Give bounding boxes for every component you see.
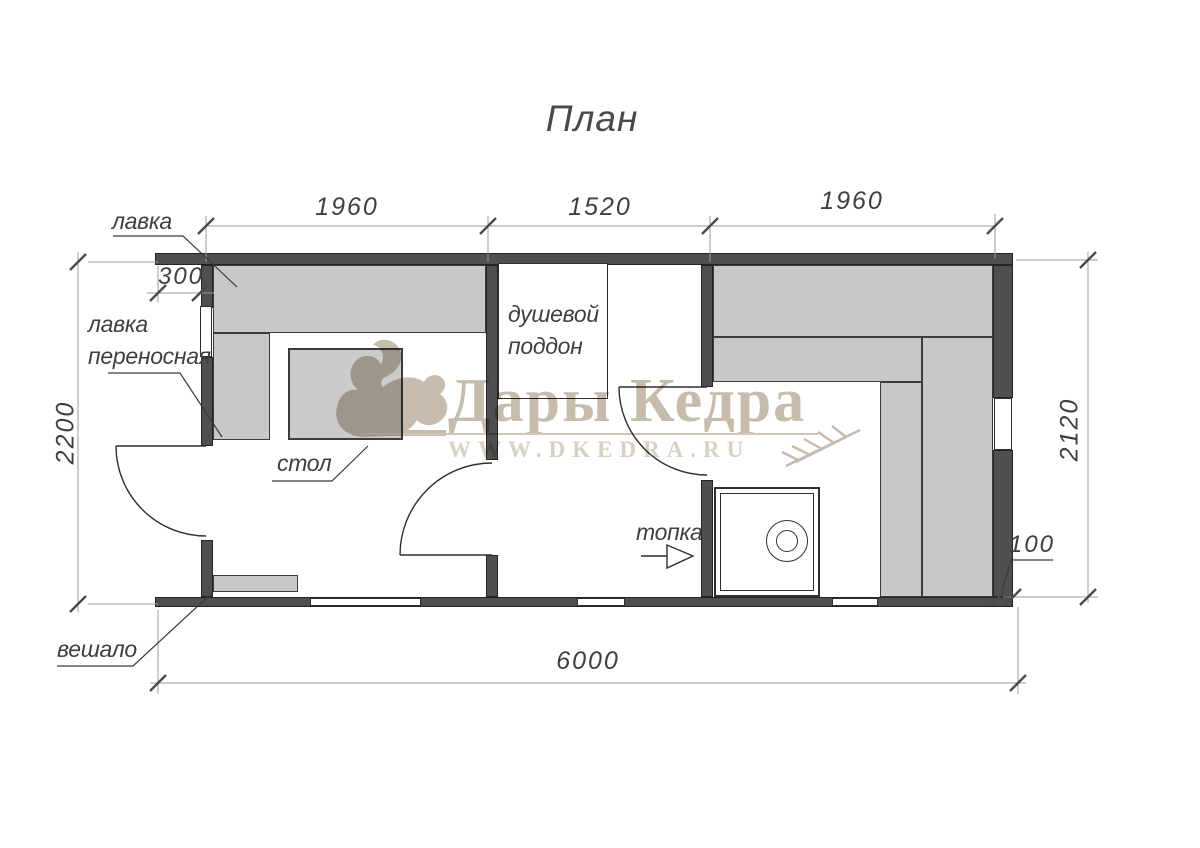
watermark: Дары Кедра WWW.DKEDRA.RU [0, 0, 1200, 848]
wheat-sprig-icon [780, 418, 870, 470]
floor-plan: 1960 1520 1960 300 2200 2120 100 6000 Пл… [0, 0, 1200, 848]
watermark-underline [360, 433, 818, 435]
squirrel-logo-icon [328, 333, 468, 445]
watermark-site: WWW.DKEDRA.RU [448, 437, 750, 463]
watermark-brand: Дары Кедра [448, 366, 806, 437]
